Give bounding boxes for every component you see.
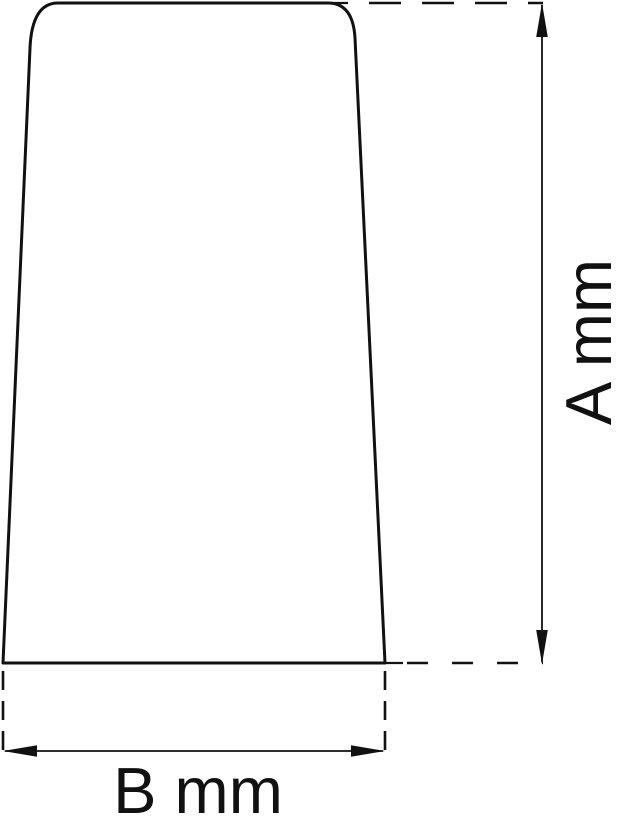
arrow-up-icon [536, 3, 548, 37]
drawing-svg: A mm B mm [0, 0, 640, 840]
technical-drawing-canvas: A mm B mm [0, 0, 640, 840]
object-outline [3, 3, 385, 663]
arrow-left-icon [3, 745, 37, 757]
arrow-down-icon [536, 630, 548, 664]
height-dimension-label: A mm [552, 259, 625, 425]
width-dimension-label: B mm [113, 754, 283, 827]
arrow-right-icon [351, 745, 385, 757]
height-dimension: A mm [331, 3, 625, 664]
width-dimension: B mm [3, 671, 385, 827]
